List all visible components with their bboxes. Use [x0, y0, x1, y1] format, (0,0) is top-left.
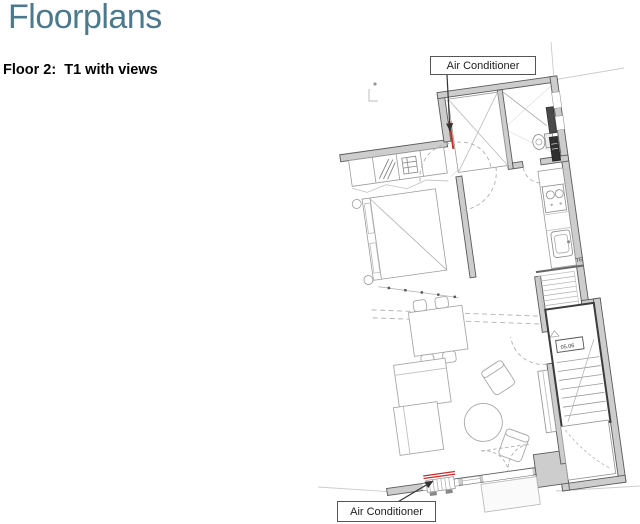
plan-group: TE 05.06 — [333, 74, 627, 524]
sofa — [388, 358, 458, 455]
callout-top-text: Air Conditioner — [447, 60, 520, 72]
nightstand — [352, 199, 362, 209]
bedroom-group — [346, 147, 465, 310]
toilet-icon — [532, 134, 546, 151]
entry-step — [481, 477, 540, 513]
armchair — [498, 428, 530, 463]
stove-icon — [542, 184, 566, 213]
callout-bottom-text: Air Conditioner — [350, 506, 423, 518]
rug — [462, 401, 505, 444]
sink-icon — [551, 230, 573, 258]
bed — [362, 189, 447, 281]
dining-chair — [435, 296, 449, 309]
callout-air-conditioner-bottom: Air Conditioner — [337, 501, 436, 522]
callout-air-conditioner-top: Air Conditioner — [430, 56, 536, 75]
shaft-x — [448, 92, 508, 172]
te-label: TE — [575, 257, 583, 264]
dining-table — [407, 294, 470, 367]
page: Floorplans Floor 2: T1 with views Air Co… — [0, 0, 640, 524]
dining-chair — [413, 299, 427, 312]
survey-marker-dot — [373, 82, 376, 85]
vestibule — [561, 420, 616, 480]
nightstand — [363, 275, 373, 285]
armchair — [481, 360, 516, 397]
ac-outdoor-unit — [426, 477, 456, 497]
floorplan-drawing: TE 05.06 — [0, 0, 640, 524]
